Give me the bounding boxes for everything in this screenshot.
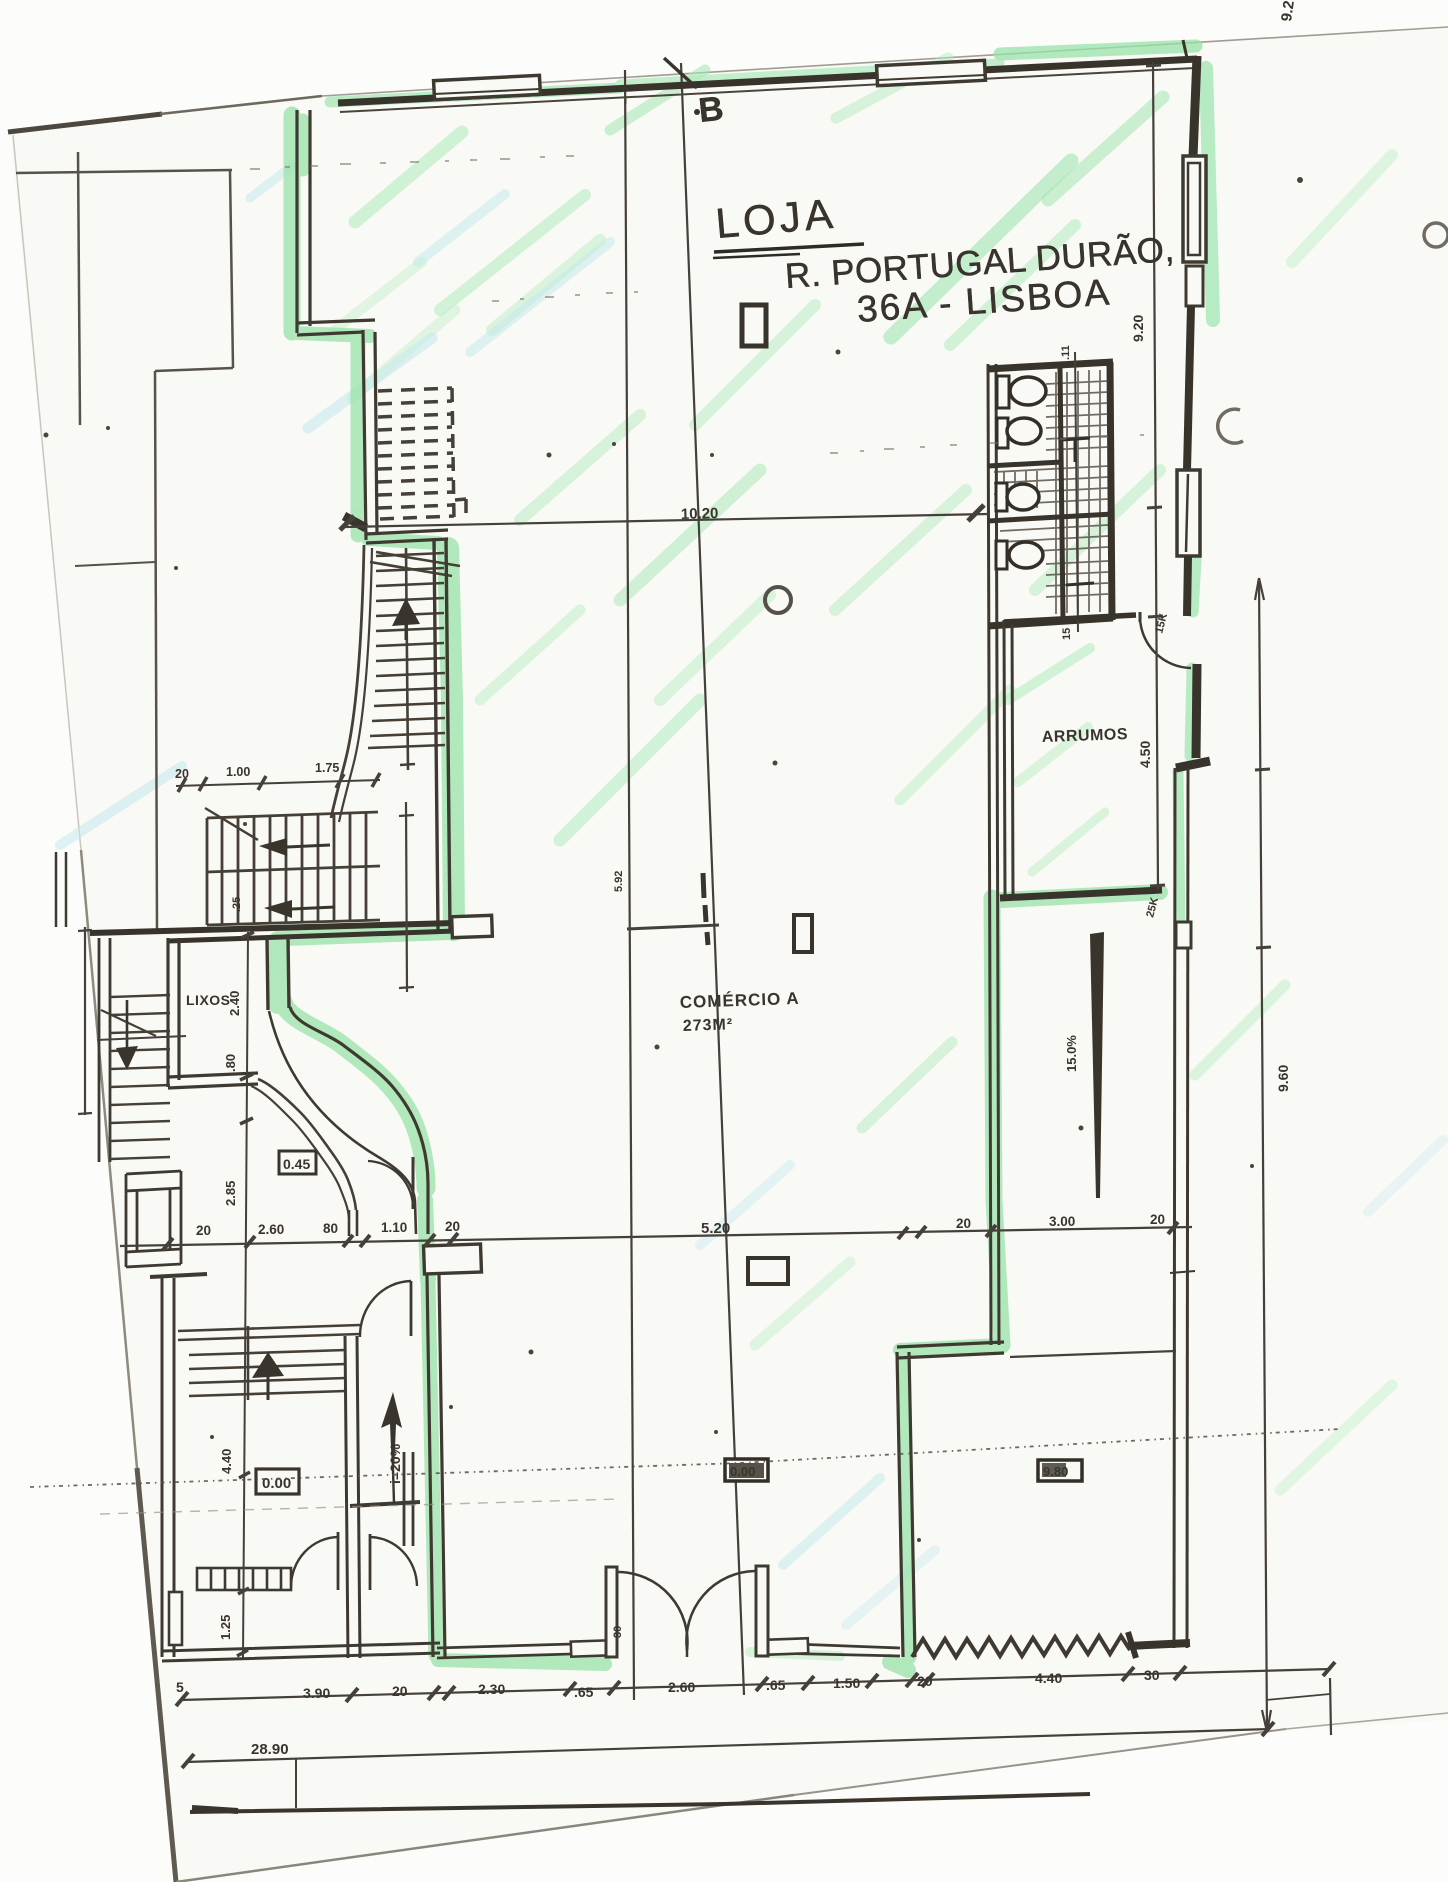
svg-text:20: 20 [956, 1216, 971, 1231]
svg-text:20: 20 [1150, 1212, 1165, 1227]
svg-text:2.60: 2.60 [668, 1679, 695, 1695]
svg-text:0.00: 0.00 [730, 1464, 755, 1479]
svg-text:.11: .11 [1060, 345, 1072, 360]
svg-text:3.90: 3.90 [303, 1685, 330, 1701]
svg-text:5.20: 5.20 [701, 1220, 730, 1237]
svg-text:0.45: 0.45 [283, 1156, 310, 1172]
svg-text:.65: .65 [766, 1677, 786, 1693]
svg-text:15.0%: 15.0% [1064, 1035, 1079, 1072]
svg-text:5: 5 [176, 1679, 184, 1695]
svg-text:.65: .65 [574, 1684, 594, 1700]
svg-text:1.75: 1.75 [315, 761, 339, 775]
svg-text:1.10: 1.10 [381, 1220, 407, 1235]
svg-text:2.60: 2.60 [258, 1222, 284, 1237]
svg-text:4.40: 4.40 [1035, 1670, 1062, 1686]
svg-text:4.40: 4.40 [219, 1449, 234, 1474]
svg-text:273M²: 273M² [683, 1016, 734, 1035]
svg-text:9.60: 9.60 [1275, 1065, 1291, 1092]
svg-text:5.92: 5.92 [613, 871, 625, 892]
svg-text:20: 20 [196, 1223, 211, 1238]
svg-text:20: 20 [175, 767, 189, 781]
svg-text:4.50: 4.50 [1137, 741, 1153, 768]
svg-text:1.00: 1.00 [226, 765, 250, 779]
svg-text:i=20%: i=20% [387, 1443, 403, 1484]
svg-text:15: 15 [1061, 628, 1073, 640]
svg-text:3.00: 3.00 [1049, 1214, 1075, 1229]
svg-text:LIXOS: LIXOS [186, 992, 231, 1008]
svg-text:ARRUMOS: ARRUMOS [1042, 726, 1129, 746]
svg-text:30: 30 [1144, 1667, 1160, 1683]
svg-text:10.20: 10.20 [681, 505, 719, 523]
svg-text:B: B [697, 90, 725, 130]
svg-text:1.50: 1.50 [833, 1675, 860, 1691]
svg-text:.25: .25 [231, 897, 243, 912]
svg-text:20: 20 [445, 1219, 460, 1234]
svg-text:2.85: 2.85 [223, 1181, 238, 1206]
svg-text:28.90: 28.90 [251, 1741, 289, 1758]
svg-text:30: 30 [612, 1626, 624, 1638]
svg-text:1.25: 1.25 [218, 1615, 233, 1640]
svg-text:2.40: 2.40 [227, 991, 242, 1016]
svg-text:9.20: 9.20 [1130, 315, 1146, 342]
svg-text:9.80: 9.80 [1043, 1464, 1068, 1479]
svg-text:.80: .80 [223, 1054, 238, 1072]
svg-text:80: 80 [323, 1221, 338, 1236]
svg-text:20: 20 [917, 1673, 933, 1689]
svg-text:2.30: 2.30 [478, 1681, 505, 1697]
svg-text:9.2: 9.2 [1278, 0, 1298, 23]
svg-text:20: 20 [392, 1683, 408, 1699]
